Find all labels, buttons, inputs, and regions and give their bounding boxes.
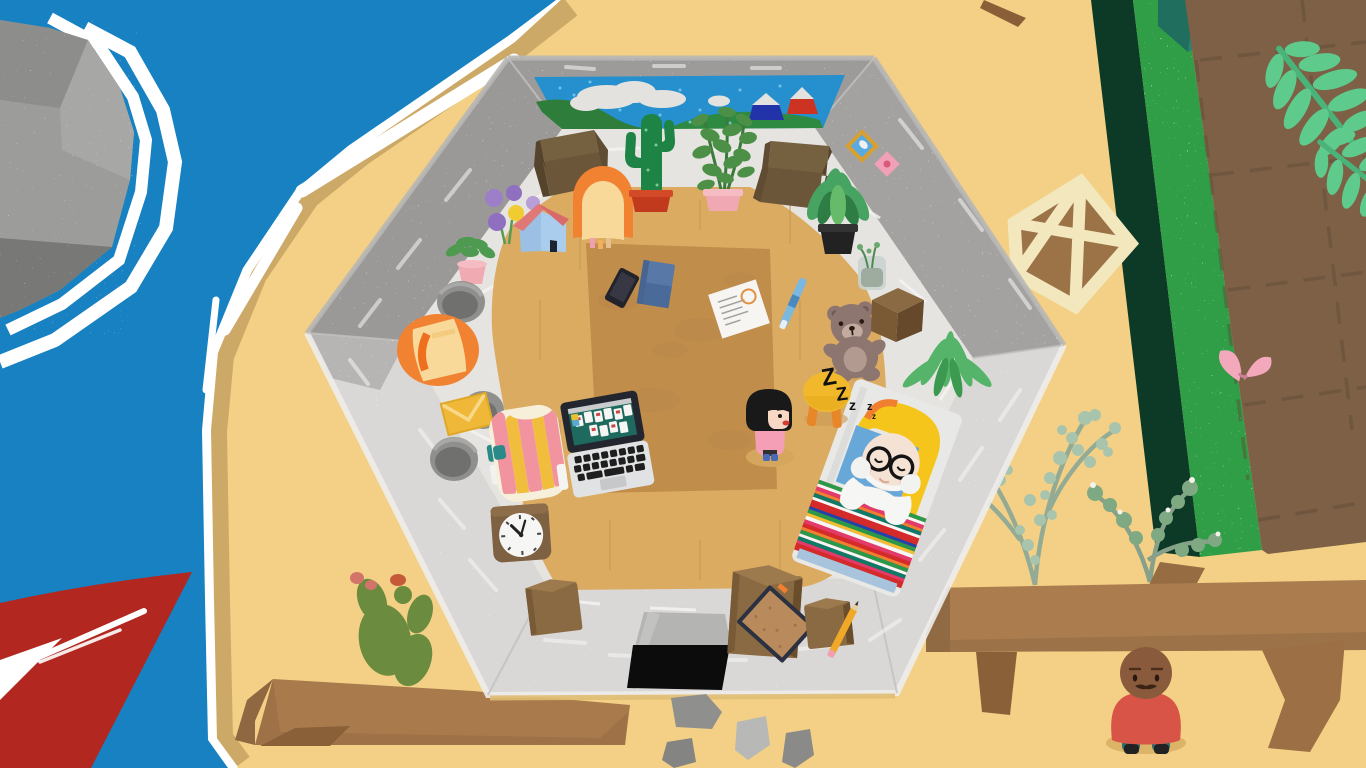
svg-text:z: z <box>872 412 876 421</box>
svg-text:z: z <box>849 397 856 413</box>
